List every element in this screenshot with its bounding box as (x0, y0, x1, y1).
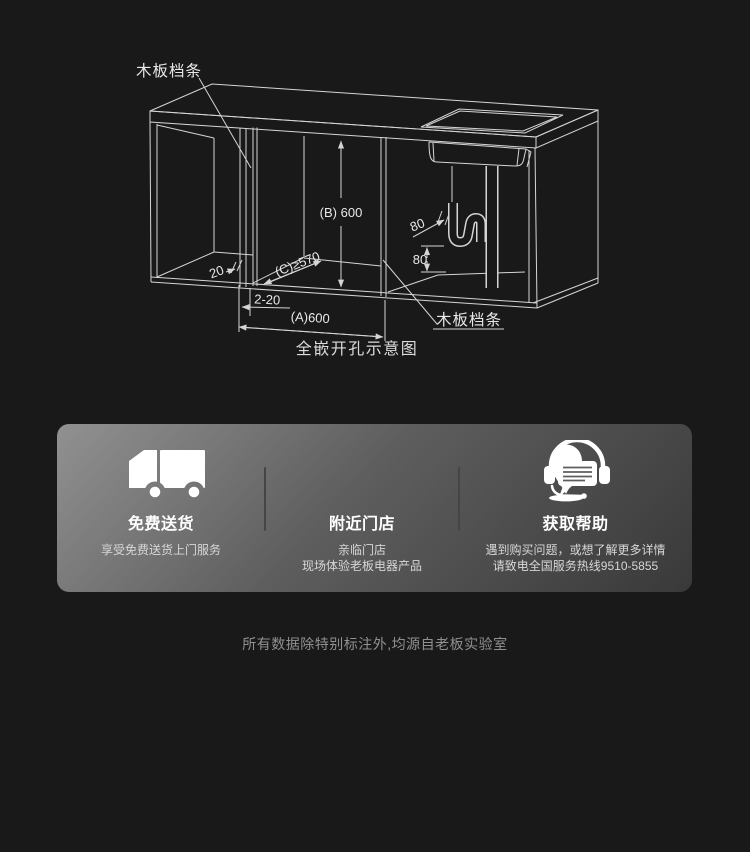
service-title: 免费送货 (57, 510, 265, 534)
service-item-get-help[interactable]: 获取帮助 遇到购买问题，或想了解更多详情 请致电全国服务热线9510-5855 (459, 424, 692, 592)
wood-strip-label-top: 木板档条 (136, 62, 202, 80)
leader-bottom-right (383, 260, 437, 324)
dim-trap-offset-label: 80 (408, 215, 427, 234)
service-item-nearby-stores[interactable]: 附近门店 亲临门店 现场体验老板电器产品 (265, 424, 459, 592)
sink-cabinet-interior (429, 142, 531, 288)
left-cabinet-interior (157, 125, 253, 277)
dim-b-label: (B) 600 (320, 205, 363, 220)
installation-diagram: (B) 600 (C)≥570 (A)600 2-20 20 80 80 木板档… (0, 0, 750, 420)
dim-strip-depth-label: 20 (207, 262, 226, 281)
service-line: 遇到购买问题，或想了解更多详情 (459, 543, 692, 559)
truck-icon (127, 446, 209, 504)
p-trap (453, 203, 481, 242)
sink-basin (429, 142, 526, 149)
dim-a-label: (A)600 (290, 309, 330, 326)
service-line: 现场体验老板电器产品 (265, 559, 459, 575)
service-item-free-delivery[interactable]: 免费送货 享受免费送货上门服务 (57, 424, 265, 592)
dim-trap-height-label: 80 (413, 252, 427, 267)
cabinet-frame (150, 121, 598, 308)
dim-gap-label: 2-20 (254, 291, 281, 307)
dim-c-label: (C)≥570 (273, 248, 322, 279)
data-source-footnote: 所有数据除特别标注外,均源自老板实验室 (0, 634, 750, 654)
wood-strip-label-bottom: 木板档条 (436, 311, 502, 329)
wood-strip (240, 128, 257, 288)
page: (B) 600 (C)≥570 (A)600 2-20 20 80 80 木板档… (0, 0, 750, 852)
service-line: 亲临门店 (265, 543, 459, 559)
countertop-slab (150, 84, 598, 148)
service-title: 获取帮助 (459, 510, 692, 534)
headset-icon (539, 440, 615, 504)
diagram-caption: 全嵌开孔示意图 (296, 339, 419, 358)
service-line: 请致电全国服务热线9510-5855 (459, 559, 692, 575)
leader-top-left (199, 78, 251, 168)
service-title: 附近门店 (265, 510, 459, 534)
services-card: 免费送货 享受免费送货上门服务 附近门店 亲临门店 现场体验老板电器产品 (57, 424, 692, 592)
service-line: 享受免费送货上门服务 (57, 543, 265, 559)
